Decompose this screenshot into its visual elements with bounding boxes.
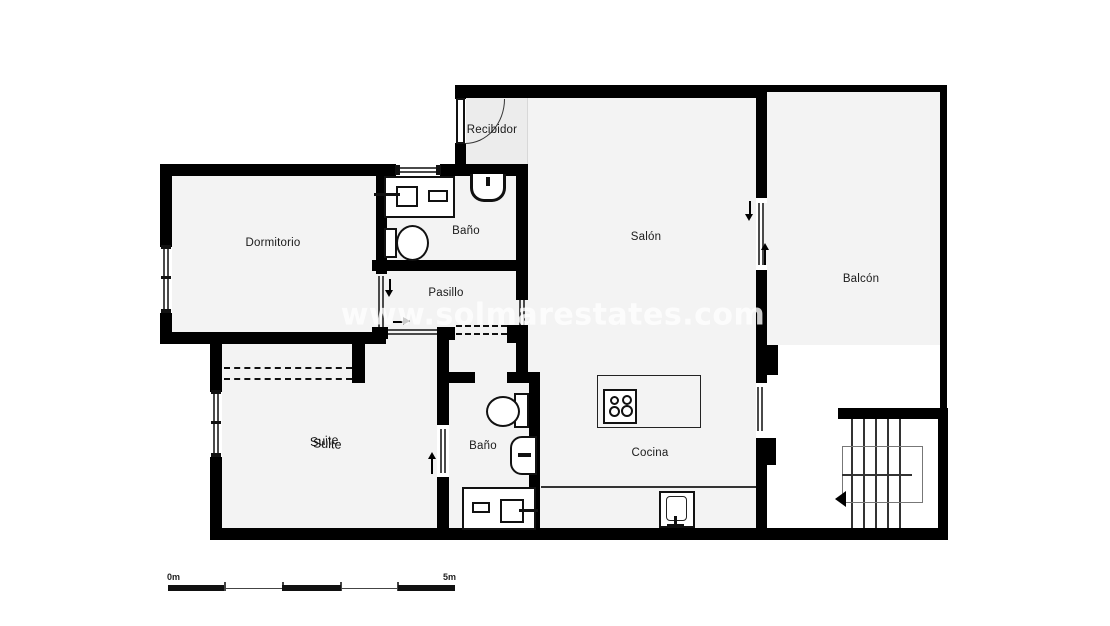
watermark: www.solmarestates.com <box>341 298 766 333</box>
arrow-up-icon <box>764 250 766 265</box>
floor-plan: Recibidor Dormitorio Baño Pasillo Salón … <box>0 0 1110 626</box>
arrow-head <box>428 452 436 459</box>
room-label-balcon: Balcón <box>843 273 879 285</box>
scale-start-label: 0m <box>167 572 180 582</box>
window-pane <box>163 249 165 311</box>
room-label-bano-bottom: Baño <box>469 440 497 452</box>
wall <box>447 372 475 383</box>
door-cap <box>437 473 449 477</box>
scale-bar-segment <box>398 585 455 591</box>
room-label-dormitorio: Dormitorio <box>245 237 300 249</box>
arrow-head <box>385 290 393 297</box>
room-label-cocina: Cocina <box>632 447 669 459</box>
arrow-left-icon <box>835 491 846 507</box>
window-cap <box>211 390 221 394</box>
arrow-head <box>745 214 753 221</box>
door-cap <box>756 431 767 435</box>
room-label-recibidor: Recibidor <box>467 124 517 136</box>
washbasin-tap <box>486 177 490 186</box>
window-cap <box>211 421 221 424</box>
wall <box>372 260 528 271</box>
window-pane <box>398 171 438 173</box>
door-cap <box>437 425 449 429</box>
window-pane <box>217 394 219 455</box>
room-label-salon: Salón <box>631 231 661 243</box>
wall <box>756 85 767 202</box>
sliding-door-icon <box>444 429 446 474</box>
stairs-direction-line <box>842 474 912 476</box>
wall <box>938 408 948 540</box>
wardrobe-icon <box>224 378 352 380</box>
toilet-icon <box>396 225 429 261</box>
wall <box>210 457 222 535</box>
window-pane <box>167 249 169 311</box>
wall <box>516 164 528 300</box>
stove-icon <box>603 389 637 424</box>
scale-bar-segment <box>282 585 341 591</box>
faucet-line <box>374 193 400 196</box>
bidet-tap <box>518 453 531 457</box>
wall <box>160 164 396 176</box>
window-pane <box>213 394 215 455</box>
window-cap <box>395 165 400 175</box>
wall <box>763 85 946 92</box>
wall <box>437 477 449 540</box>
door-cap <box>756 265 767 270</box>
entrance-door-leaf <box>456 98 465 144</box>
toilet-icon <box>486 396 520 427</box>
sink-icon <box>396 186 418 207</box>
window-cap <box>161 276 171 279</box>
scale-bar-tick <box>224 582 226 591</box>
wardrobe-icon <box>224 367 352 369</box>
burner-icon <box>622 395 632 405</box>
scale-end-label: 5m <box>443 572 456 582</box>
burner-icon <box>610 396 619 405</box>
wall-pillar <box>756 438 776 465</box>
window-cap <box>211 453 221 457</box>
kitchen-counter-line <box>541 486 756 488</box>
window-icon <box>160 247 172 313</box>
sliding-door-icon <box>388 333 437 335</box>
wall <box>160 164 172 247</box>
sliding-door-icon <box>761 387 763 432</box>
room-label-bano-top: Baño <box>452 225 480 237</box>
soap-tray <box>472 502 490 513</box>
window-cap <box>161 309 171 313</box>
balcon-floor <box>763 92 940 345</box>
scale-bar-segment <box>168 585 224 591</box>
burner-icon <box>621 405 633 417</box>
wardrobe-icon <box>456 333 507 335</box>
wall <box>838 408 946 419</box>
window-cap <box>161 245 171 249</box>
sliding-door-icon <box>758 203 760 266</box>
wall <box>756 465 767 540</box>
sliding-door-icon <box>757 387 759 432</box>
wall <box>455 85 767 98</box>
room-label-suite: Suite <box>313 436 342 451</box>
faucet-line <box>519 509 538 512</box>
salon-cocina-floor <box>528 164 756 528</box>
wall <box>210 528 948 540</box>
window-cap <box>436 165 441 175</box>
sliding-door-icon <box>440 429 442 474</box>
burner-icon <box>609 406 620 417</box>
arrow-head <box>761 243 769 250</box>
soap-tray <box>428 190 448 202</box>
wall <box>516 341 528 376</box>
window-pane <box>398 167 438 169</box>
wall <box>940 85 947 415</box>
door-cap <box>756 198 767 203</box>
window-icon <box>210 392 222 457</box>
kitchen-sink-tap-base <box>667 524 684 528</box>
wall <box>455 85 466 99</box>
wall-pillar <box>756 345 778 375</box>
arrow-up-icon <box>431 459 433 474</box>
door-cap <box>756 383 767 387</box>
window-icon <box>396 164 440 176</box>
wall <box>352 333 365 383</box>
wall <box>210 344 222 392</box>
